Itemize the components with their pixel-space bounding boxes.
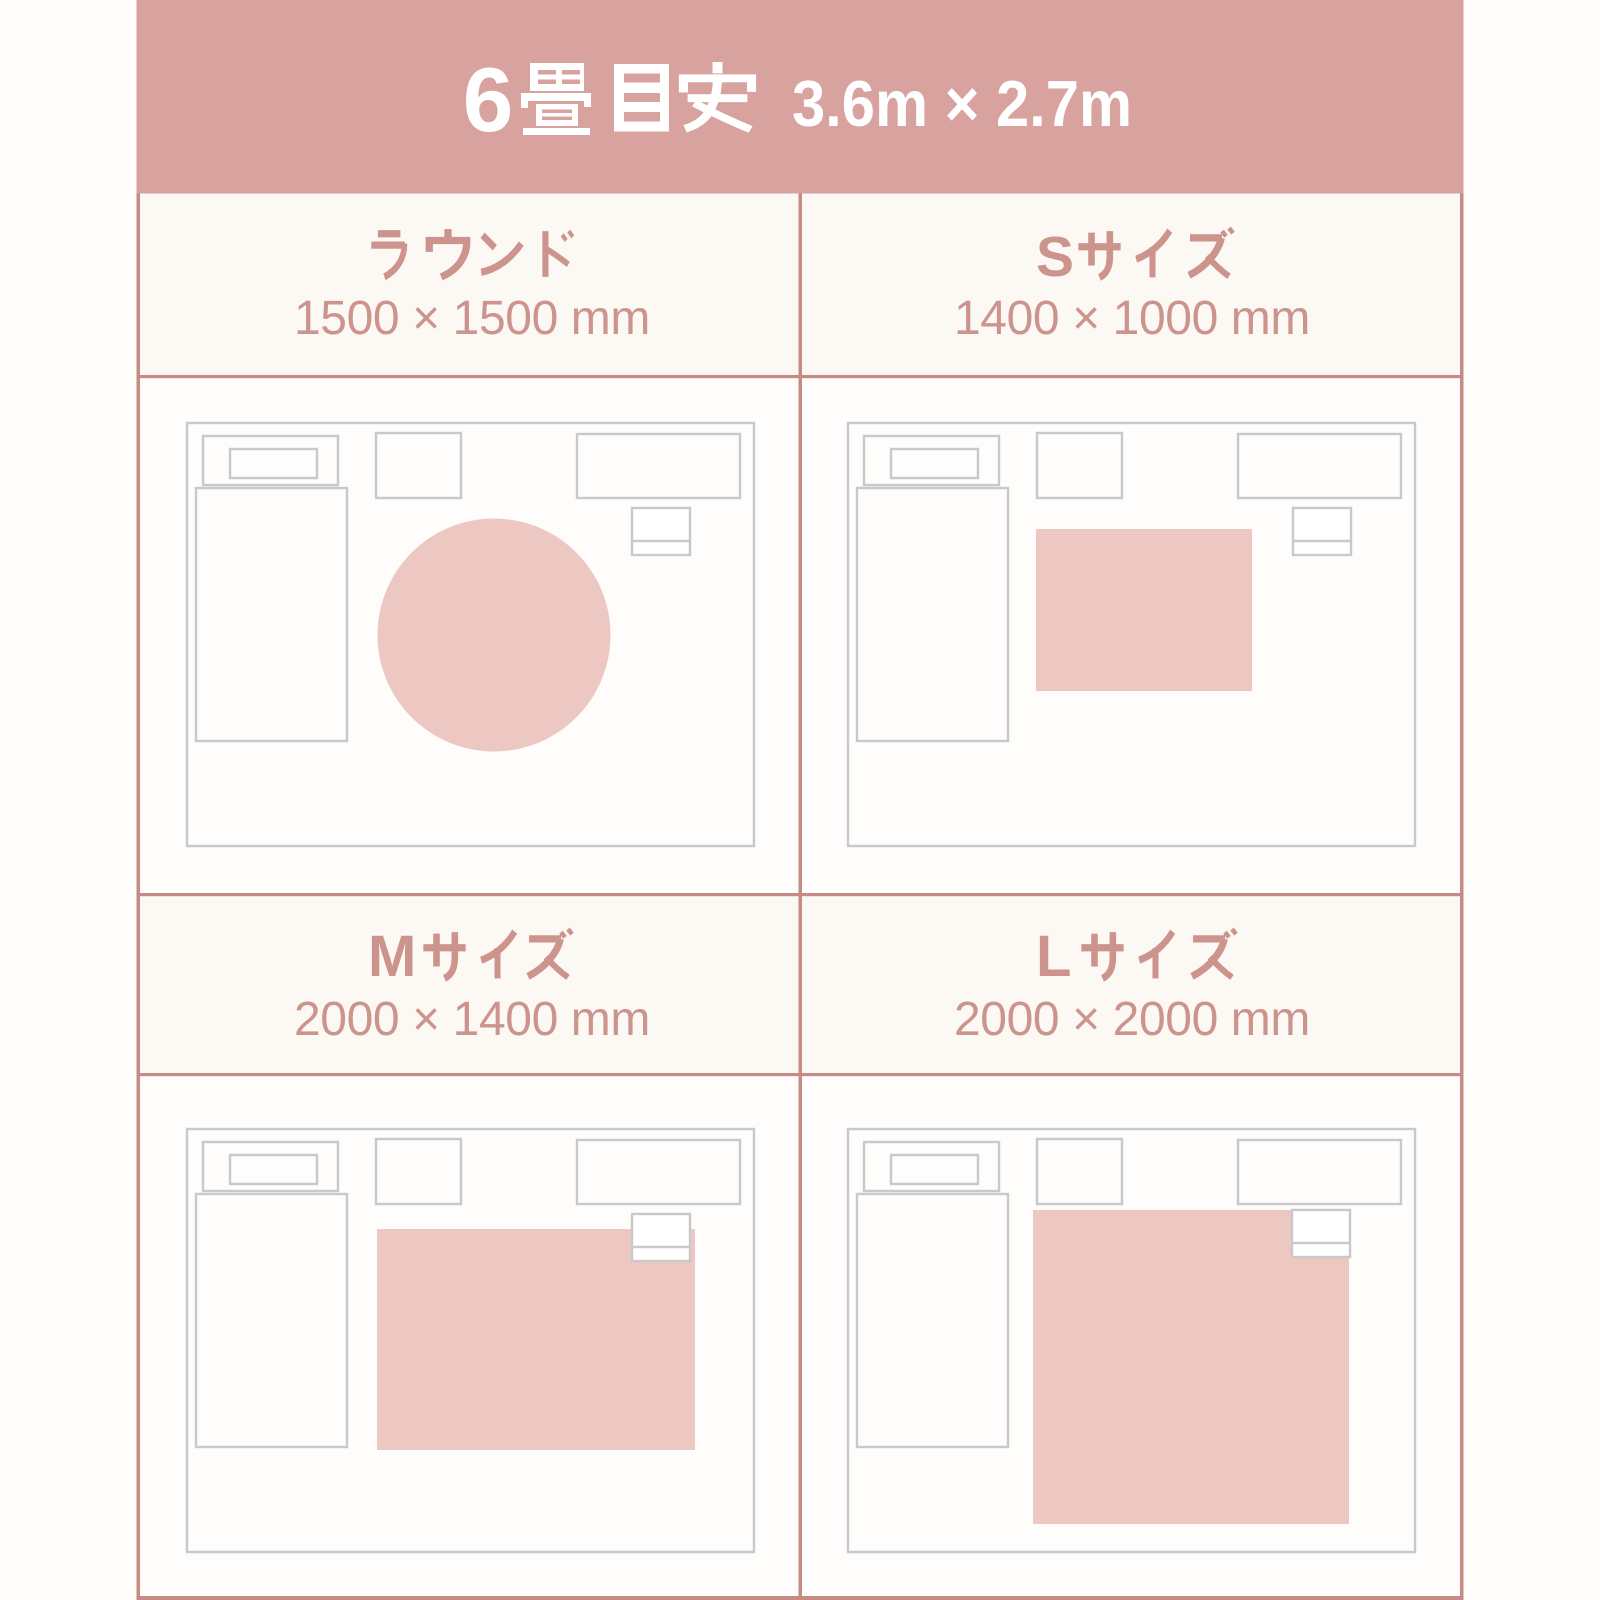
- svg-text:2000 × 2000 mm: 2000 × 2000 mm: [954, 993, 1310, 1046]
- svg-text:3.6m × 2.7m: 3.6m × 2.7m: [792, 67, 1132, 140]
- svg-text:S: S: [1036, 225, 1074, 289]
- svg-text:1400 × 1000 mm: 1400 × 1000 mm: [954, 292, 1310, 345]
- svg-text:L: L: [1036, 924, 1071, 989]
- svg-text:M: M: [368, 924, 416, 989]
- svg-text:2000 × 1400 mm: 2000 × 1400 mm: [294, 993, 650, 1046]
- svg-text:6: 6: [463, 50, 514, 151]
- svg-text:1500 × 1500 mm: 1500 × 1500 mm: [294, 292, 650, 345]
